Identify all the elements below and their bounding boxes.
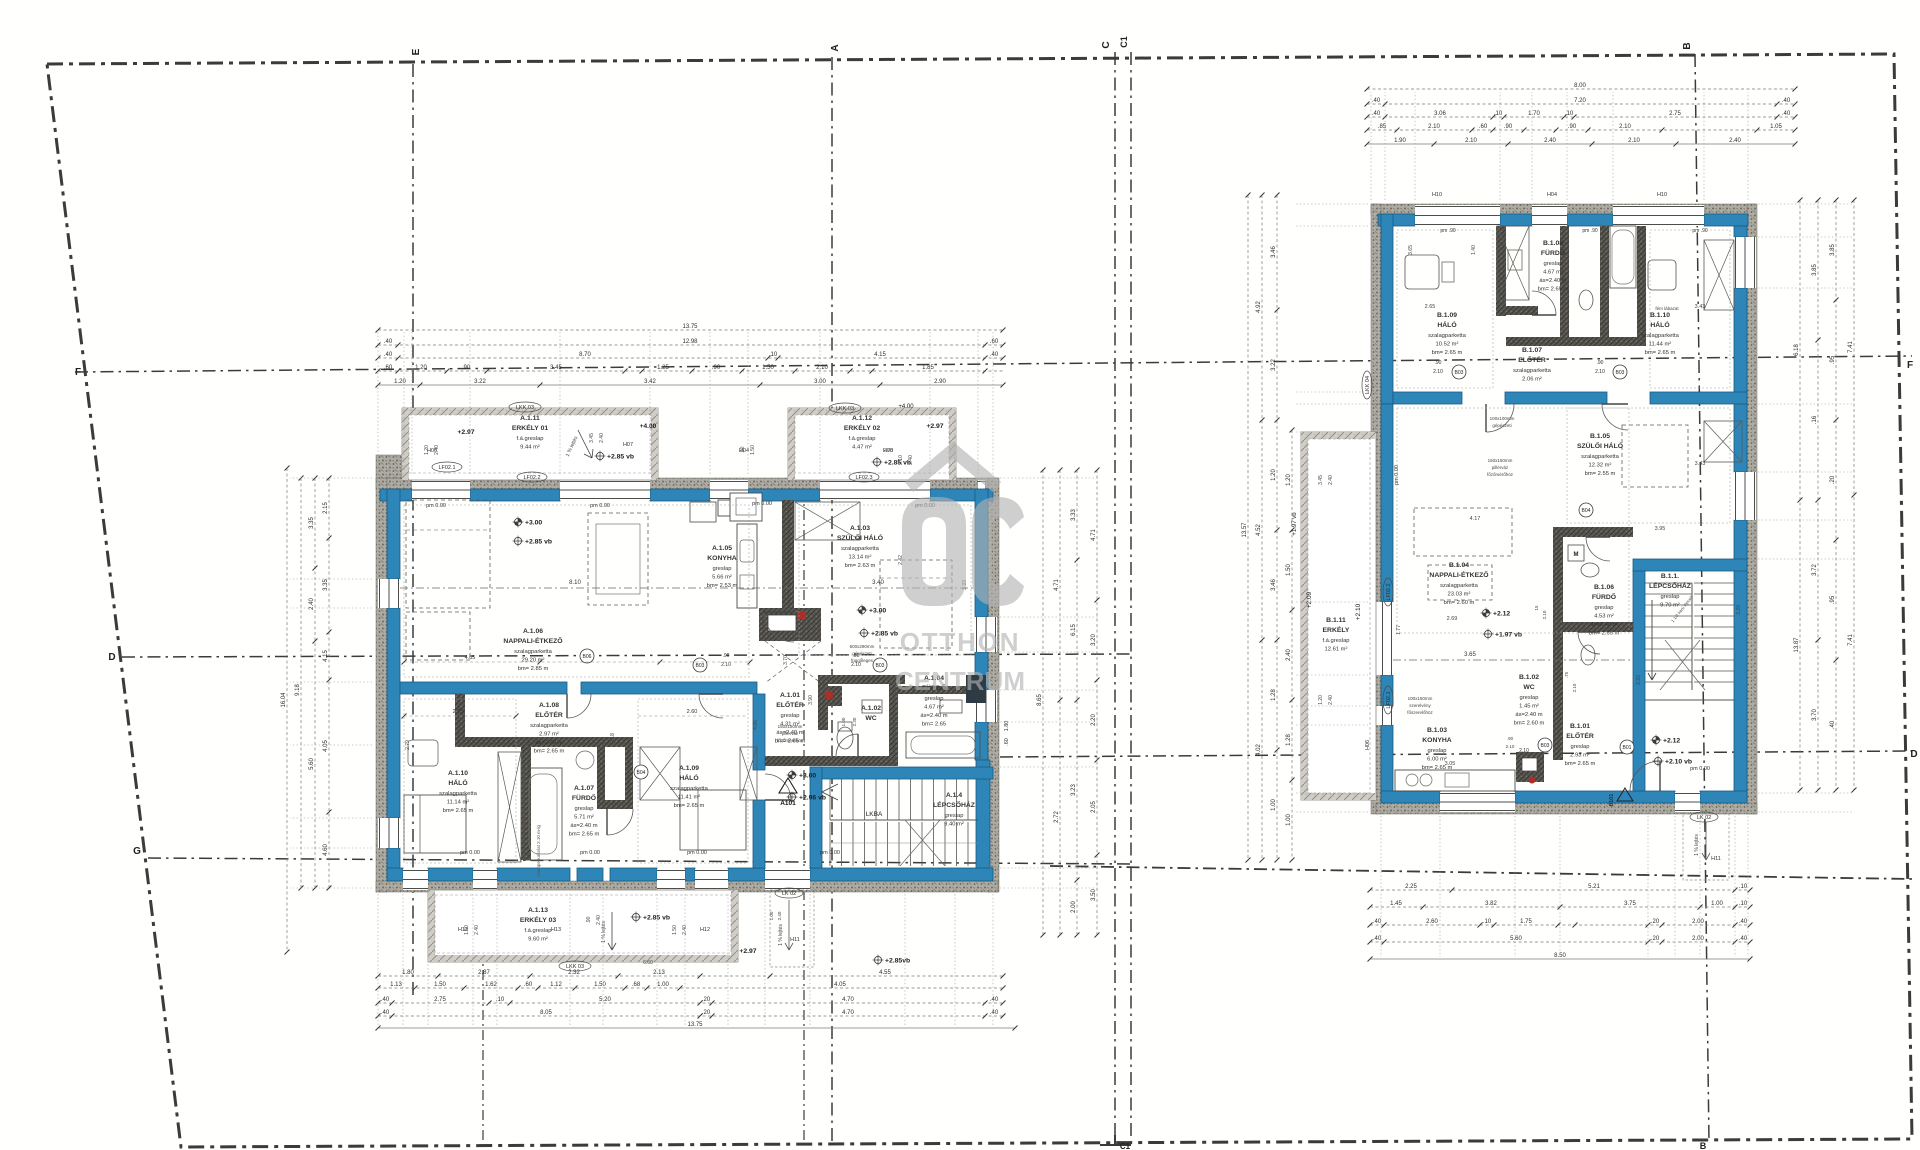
svg-text:2.10: 2.10 — [1433, 369, 1443, 375]
svg-text:2.40: 2.40 — [596, 915, 602, 925]
svg-text:2.90: 2.90 — [934, 379, 946, 385]
svg-text:11.14 m²: 11.14 m² — [447, 800, 470, 806]
svg-text:600x290mm: 600x290mm — [850, 644, 875, 649]
svg-text:2.10: 2.10 — [816, 365, 828, 371]
svg-text:A101: A101 — [780, 800, 796, 807]
svg-text:2.10: 2.10 — [1572, 683, 1577, 692]
svg-text:.20: .20 — [1651, 936, 1660, 942]
svg-text:KONYHA: KONYHA — [707, 555, 737, 562]
svg-text:1.85: 1.85 — [922, 365, 934, 371]
svg-text:4.47 m²: 4.47 m² — [852, 445, 872, 451]
svg-text:ELŐTÉR: ELŐTÉR — [776, 700, 804, 709]
svg-text:LKK 03: LKK 03 — [516, 405, 534, 411]
svg-text:1.12: 1.12 — [550, 982, 562, 988]
svg-text:9.70 m²: 9.70 m² — [1660, 603, 1680, 609]
svg-text:B03: B03 — [1616, 370, 1625, 376]
svg-text:.95: .95 — [1830, 595, 1836, 604]
svg-text:B.1.08: B.1.08 — [1543, 240, 1563, 247]
svg-text:2.10: 2.10 — [1542, 610, 1547, 619]
svg-text:1.00: 1.00 — [1711, 901, 1723, 907]
svg-text:8.00: 8.00 — [1574, 83, 1586, 89]
svg-text:greslap: greslap — [712, 566, 731, 572]
svg-text:1.20: 1.20 — [415, 365, 427, 371]
svg-text:3.35: 3.35 — [309, 517, 315, 529]
svg-text:11.44 m²: 11.44 m² — [1649, 342, 1672, 348]
svg-text:2.20: 2.20 — [1636, 675, 1642, 685]
svg-text:3.42: 3.42 — [644, 379, 656, 385]
svg-text:+3.00: +3.00 — [799, 773, 816, 780]
svg-text:A.1.11: A.1.11 — [520, 415, 540, 422]
svg-text:4.17: 4.17 — [1470, 516, 1481, 522]
svg-text:7.20: 7.20 — [1574, 98, 1586, 104]
svg-text:ELŐTÉR: ELŐTÉR — [535, 710, 563, 719]
svg-text:ERKÉLY: ERKÉLY — [1323, 625, 1350, 634]
svg-text:LKK 03: LKK 03 — [566, 964, 584, 970]
svg-text:greslap: greslap — [944, 813, 963, 819]
svg-text:1.50: 1.50 — [594, 982, 606, 988]
svg-text:ELŐTÉR: ELŐTÉR — [1566, 731, 1594, 740]
svg-text:2.72: 2.72 — [1054, 811, 1060, 823]
svg-text:B101: B101 — [1609, 794, 1615, 807]
svg-text:.40: .40 — [990, 997, 999, 1003]
svg-text:.10: .10 — [769, 352, 778, 358]
svg-text:.20: .20 — [1830, 475, 1836, 484]
svg-text:3.43: 3.43 — [1695, 304, 1706, 310]
svg-text:4.70: 4.70 — [842, 997, 854, 1003]
svg-text:pm .90: pm .90 — [1440, 228, 1456, 234]
svg-text:3.65: 3.65 — [1408, 245, 1414, 255]
svg-text:ás=2.40 m: ás=2.40 m — [1590, 622, 1617, 628]
svg-text:8.65: 8.65 — [1037, 694, 1043, 706]
svg-text:150x150mm: 150x150mm — [778, 724, 803, 729]
svg-text:ás=2.40 m: ás=2.40 m — [1515, 712, 1542, 718]
svg-text:2.10: 2.10 — [721, 662, 731, 668]
svg-text:B.1.11: B.1.11 — [1326, 617, 1346, 624]
svg-text:4.15: 4.15 — [323, 650, 329, 662]
svg-text:HÁLÓ: HÁLÓ — [448, 778, 467, 787]
svg-text:főszerelőhöz: főszerelőhöz — [1407, 710, 1433, 715]
svg-text:2.70: 2.70 — [883, 448, 893, 454]
svg-text:+2.97: +2.97 — [739, 948, 756, 955]
svg-text:2.10: 2.10 — [1506, 744, 1515, 749]
svg-text:2.25: 2.25 — [1405, 884, 1417, 890]
svg-text:B.1.04: B.1.04 — [1449, 562, 1469, 569]
svg-text:D: D — [108, 652, 115, 663]
svg-text:1.70: 1.70 — [1528, 111, 1540, 117]
svg-text:.90: .90 — [740, 446, 746, 453]
svg-text:szalagparketta: szalagparketta — [530, 723, 568, 729]
svg-text:B03: B03 — [696, 663, 705, 669]
svg-text:.40: .40 — [384, 339, 393, 345]
svg-text:2.40: 2.40 — [1286, 649, 1292, 661]
svg-text:greslap: greslap — [780, 713, 799, 719]
svg-text:.40: .40 — [381, 997, 390, 1003]
svg-text:1.50: 1.50 — [1286, 564, 1292, 576]
svg-text:fém lábazat: fém lábazat — [1655, 306, 1679, 311]
svg-text:.40: .40 — [1739, 919, 1748, 925]
svg-text:11.41 m²: 11.41 m² — [678, 795, 701, 801]
svg-text:2.40: 2.40 — [1328, 695, 1334, 705]
svg-text:4.85: 4.85 — [465, 655, 476, 661]
svg-text:3.22: 3.22 — [1271, 359, 1277, 371]
svg-text:2.87: 2.87 — [478, 970, 490, 976]
svg-text:6.15: 6.15 — [1071, 624, 1077, 636]
svg-text:2.10: 2.10 — [1628, 138, 1640, 144]
svg-text:4.52: 4.52 — [1256, 524, 1262, 536]
svg-text:100x100mm: 100x100mm — [1490, 416, 1515, 421]
svg-text:2.40: 2.40 — [599, 433, 605, 443]
svg-text:.90: .90 — [723, 653, 730, 659]
svg-text:H13: H13 — [551, 927, 561, 933]
svg-text:7.41: 7.41 — [1848, 341, 1854, 353]
svg-text:3.35: 3.35 — [323, 579, 329, 591]
svg-text:B04: B04 — [1582, 508, 1591, 514]
svg-text:5.20: 5.20 — [599, 997, 611, 1003]
svg-text:FÜRDŐ: FÜRDŐ — [572, 793, 596, 802]
svg-text:4.15: 4.15 — [874, 352, 886, 358]
svg-text:75: 75 — [526, 740, 532, 746]
svg-text:3.33: 3.33 — [1071, 509, 1077, 521]
svg-text:10.52 m²: 10.52 m² — [1436, 342, 1459, 348]
svg-text:H06: H06 — [1365, 740, 1371, 750]
svg-text:szalagparketta: szalagparketta — [1641, 333, 1679, 339]
svg-text:.90: .90 — [1507, 736, 1514, 741]
svg-text:bm= 2.65 m: bm= 2.65 m — [1538, 287, 1569, 293]
svg-text:főzőmérőhöz: főzőmérőhöz — [777, 738, 804, 743]
svg-text:.60: .60 — [1004, 738, 1010, 746]
svg-text:bm= 2.53 m: bm= 2.53 m — [707, 583, 738, 589]
svg-text:B.1.01: B.1.01 — [1570, 723, 1590, 730]
svg-text:pm 0.00: pm 0.00 — [590, 503, 610, 509]
svg-text:.68: .68 — [632, 982, 641, 988]
svg-text:2.40: 2.40 — [908, 455, 914, 465]
svg-text:.10: .10 — [1494, 111, 1503, 117]
svg-text:pm 0.00: pm 0.00 — [460, 850, 480, 856]
svg-text:9.44 m²: 9.44 m² — [520, 445, 540, 451]
svg-text:3.70: 3.70 — [783, 655, 789, 665]
svg-text:bm= 2.65: bm= 2.65 — [922, 722, 946, 728]
svg-text:+2.85 vb: +2.85 vb — [871, 631, 898, 638]
svg-text:8.05: 8.05 — [540, 1010, 552, 1016]
svg-text:LF02.2: LF02.2 — [523, 475, 540, 481]
svg-text:3.00: 3.00 — [814, 379, 826, 385]
svg-text:.20: .20 — [702, 997, 711, 1003]
svg-text:HÁLÓ: HÁLÓ — [1650, 320, 1669, 329]
svg-text:H04: H04 — [1547, 192, 1557, 198]
svg-text:1.20: 1.20 — [1286, 474, 1292, 486]
svg-text:pm 0.00: pm 0.00 — [752, 501, 772, 507]
svg-text:2.75: 2.75 — [453, 709, 464, 715]
svg-text:szalagparketta: szalagparketta — [1440, 583, 1478, 589]
svg-text:KONYHA: KONYHA — [1422, 737, 1452, 744]
svg-text:12.98: 12.98 — [682, 339, 698, 345]
svg-text:greslap: greslap — [1543, 261, 1562, 267]
svg-text:.10: .10 — [1739, 901, 1748, 907]
svg-text:1.50: 1.50 — [750, 445, 756, 455]
svg-text:pillérváz: pillérváz — [782, 731, 799, 736]
svg-text:2.40: 2.40 — [1544, 138, 1556, 144]
svg-text:3.06: 3.06 — [1434, 111, 1446, 117]
svg-text:bm= 2.55 m: bm= 2.55 m — [1585, 471, 1616, 477]
svg-text:1.00: 1.00 — [769, 911, 774, 920]
svg-text:ás=2.40 m: ás=2.40 m — [920, 713, 947, 719]
svg-text:4.02: 4.02 — [1256, 744, 1262, 756]
svg-text:3.43: 3.43 — [1695, 461, 1706, 467]
svg-text:3.70: 3.70 — [1812, 709, 1818, 721]
svg-text:szalagparketta: szalagparketta — [439, 791, 477, 797]
svg-text:greslap: greslap — [1594, 605, 1613, 611]
svg-text:+3.00: +3.00 — [869, 608, 886, 615]
svg-text:A.1.02: A.1.02 — [861, 705, 881, 712]
svg-text:.60: .60 — [1479, 124, 1488, 130]
svg-text:.40: .40 — [384, 352, 393, 358]
svg-text:H10: H10 — [1657, 192, 1667, 198]
svg-text:B.1.1.: B.1.1. — [1661, 573, 1679, 580]
svg-text:5.60: 5.60 — [309, 758, 315, 770]
svg-text:5.66 m²: 5.66 m² — [712, 575, 732, 581]
svg-text:1.25: 1.25 — [657, 365, 669, 371]
svg-text:12.32 m²: 12.32 m² — [1589, 463, 1612, 469]
svg-text:LÉPCSŐHÁZ: LÉPCSŐHÁZ — [1649, 581, 1691, 590]
svg-text:C1: C1 — [1119, 36, 1129, 48]
svg-text:4.71: 4.71 — [1054, 579, 1060, 591]
svg-text:pm 0.00: pm 0.00 — [580, 850, 600, 856]
svg-text:8.70: 8.70 — [579, 352, 591, 358]
svg-text:1.62: 1.62 — [485, 982, 497, 988]
svg-text:2.10: 2.10 — [1519, 748, 1529, 754]
svg-text:+4.00: +4.00 — [898, 404, 914, 410]
svg-text:8.50: 8.50 — [1554, 953, 1566, 959]
svg-text:2.00: 2.00 — [1071, 901, 1077, 913]
svg-text:2.10: 2.10 — [1428, 124, 1440, 130]
svg-text:1 % lejtés: 1 % lejtés — [1694, 834, 1700, 856]
svg-text:.20: .20 — [702, 1010, 711, 1016]
svg-text:A.1.05: A.1.05 — [712, 545, 732, 552]
svg-text:16.04: 16.04 — [281, 692, 287, 708]
svg-text:6.60: 6.60 — [643, 960, 653, 966]
svg-text:2.10: 2.10 — [898, 455, 904, 465]
svg-text:100x150mm: 100x150mm — [1408, 696, 1433, 701]
svg-text:f.á.greslap: f.á.greslap — [1322, 638, 1349, 644]
svg-text:greslap: greslap — [1570, 744, 1589, 750]
svg-text:2.06 m²: 2.06 m² — [1522, 377, 1542, 383]
svg-text:bm= 2.65 m: bm= 2.65 m — [1645, 350, 1676, 356]
svg-text:.90: .90 — [1597, 360, 1604, 366]
svg-text:f.á.greslap: f.á.greslap — [848, 436, 875, 442]
svg-text:bm= 2.65 m: bm= 2.65 m — [1589, 631, 1620, 637]
svg-text:.16: .16 — [1812, 415, 1818, 424]
svg-text:pm 0.00: pm 0.00 — [426, 503, 446, 509]
svg-text:LÉPCSŐHÁZ: LÉPCSŐHÁZ — [933, 800, 975, 809]
svg-text:ERKÉLY 03: ERKÉLY 03 — [520, 915, 556, 924]
svg-text:.60: .60 — [524, 982, 533, 988]
svg-text:1.50: 1.50 — [434, 982, 446, 988]
svg-text:13.87: 13.87 — [1794, 637, 1800, 653]
svg-text:+2.85 vb: +2.85 vb — [607, 454, 634, 461]
svg-text:A.1.06: A.1.06 — [523, 628, 543, 635]
svg-text:4.05: 4.05 — [323, 740, 329, 752]
svg-text:NAPPALI-ÉTKEZŐ: NAPPALI-ÉTKEZŐ — [503, 636, 562, 645]
svg-text:1.50: 1.50 — [672, 925, 678, 935]
svg-text:4.92: 4.92 — [1256, 301, 1262, 313]
svg-text:4.67 m²: 4.67 m² — [1543, 270, 1563, 276]
svg-text:3.45: 3.45 — [1318, 475, 1324, 485]
svg-text:pm 0.00: pm 0.00 — [820, 850, 840, 856]
svg-text:6.18: 6.18 — [1794, 344, 1800, 356]
svg-text:szerelvény: szerelvény — [1409, 703, 1431, 708]
svg-text:3.05: 3.05 — [1445, 761, 1456, 767]
svg-text:.90: .90 — [712, 365, 721, 371]
svg-text:B03: B03 — [1455, 370, 1464, 376]
svg-text:.40: .40 — [1372, 111, 1381, 117]
svg-text:2.79: 2.79 — [405, 740, 411, 750]
svg-text:.40: .40 — [1782, 111, 1791, 117]
svg-text:B: B — [1700, 1141, 1707, 1150]
svg-text:1 % lejtés: 1 % lejtés — [778, 924, 784, 946]
svg-text:+2.96 vb: +2.96 vb — [799, 795, 826, 802]
svg-text:A.1.4: A.1.4 — [946, 792, 962, 799]
svg-text:H11: H11 — [1711, 856, 1721, 862]
svg-text:1.90: 1.90 — [1394, 138, 1406, 144]
svg-text:13.75: 13.75 — [682, 324, 698, 330]
svg-text:3.95: 3.95 — [1655, 526, 1666, 532]
svg-text:1.00: 1.00 — [657, 982, 669, 988]
svg-text:9.18: 9.18 — [295, 684, 301, 696]
svg-text:greslap: greslap — [574, 806, 593, 812]
svg-text:A: A — [830, 44, 841, 51]
svg-text:B.1.03: B.1.03 — [1427, 727, 1447, 734]
svg-text:A.1.09: A.1.09 — [679, 765, 699, 772]
svg-text:.10: .10 — [1739, 884, 1748, 890]
svg-text:szalagparketta: szalagparketta — [1428, 333, 1466, 339]
svg-text:B.1.07: B.1.07 — [1522, 347, 1542, 354]
svg-text:A.1.10: A.1.10 — [448, 770, 468, 777]
svg-text:pm .90: pm .90 — [1582, 228, 1598, 234]
svg-text:M: M — [1574, 552, 1579, 558]
svg-text:4.60: 4.60 — [323, 844, 329, 856]
svg-text:.10: .10 — [1565, 111, 1574, 117]
svg-text:3.46: 3.46 — [1271, 246, 1277, 258]
svg-text:F: F — [75, 367, 81, 378]
svg-text:B03: B03 — [876, 663, 885, 669]
svg-text:LKBA: LKBA — [866, 811, 883, 818]
svg-text:+2.10: +2.10 — [1355, 603, 1362, 620]
svg-text:NAPPALI-ÉTKEZŐ: NAPPALI-ÉTKEZŐ — [1429, 570, 1488, 579]
svg-text:2.10: 2.10 — [1595, 369, 1605, 375]
svg-text:f.á.greslap: f.á.greslap — [516, 436, 543, 442]
svg-text:.90: .90 — [1435, 360, 1442, 366]
svg-text:3.23: 3.23 — [1071, 784, 1077, 796]
svg-text:E: E — [411, 48, 422, 55]
svg-text:2.60: 2.60 — [687, 709, 698, 715]
svg-text:+3.00: +3.00 — [525, 520, 542, 527]
svg-text:SZÜLŐI HÁLÓ: SZÜLŐI HÁLÓ — [837, 533, 883, 542]
svg-text:OTTHON: OTTHON — [900, 627, 1021, 657]
svg-text:.40: .40 — [1372, 98, 1381, 104]
svg-text:9.60 m²: 9.60 m² — [528, 937, 548, 943]
svg-text:WC: WC — [1523, 684, 1534, 691]
svg-text:A.1.13: A.1.13 — [528, 907, 548, 914]
svg-text:3.72: 3.72 — [1812, 564, 1818, 576]
svg-text:bm= 2.65 m: bm= 2.65 m — [534, 749, 565, 755]
svg-text:1.75: 1.75 — [1520, 919, 1532, 925]
svg-text:B03: B03 — [1541, 743, 1550, 749]
svg-text:WC: WC — [865, 715, 876, 722]
svg-text:főzőmérőhöz: főzőmérőhöz — [1487, 472, 1514, 477]
svg-text:1.28: 1.28 — [1271, 689, 1277, 701]
svg-text:1.40: 1.40 — [1471, 245, 1477, 255]
svg-text:bm= 2.85 m: bm= 2.85 m — [518, 666, 549, 672]
svg-text:2.65: 2.65 — [1425, 304, 1436, 310]
svg-text:2.40: 2.40 — [474, 925, 480, 935]
svg-text:G: G — [133, 846, 141, 857]
svg-text:2.10: 2.10 — [1619, 124, 1631, 130]
svg-text:CENTRUM: CENTRUM — [895, 666, 1025, 696]
svg-text:.90: .90 — [1504, 124, 1513, 130]
svg-text:LKK 03: LKK 03 — [836, 406, 854, 412]
svg-text:3.22: 3.22 — [474, 379, 486, 385]
svg-text:.60: .60 — [384, 365, 393, 371]
svg-text:pm .90: pm .90 — [1692, 228, 1708, 234]
svg-text:+1.97 vb: +1.97 vb — [1495, 632, 1522, 639]
svg-text:1.00: 1.00 — [1286, 814, 1292, 826]
svg-text:13.75: 13.75 — [687, 1022, 703, 1028]
svg-text:2.40: 2.40 — [1328, 475, 1334, 485]
svg-text:13.57: 13.57 — [1242, 522, 1248, 538]
svg-text:.40: .40 — [990, 1010, 999, 1016]
svg-text:.85: .85 — [1378, 124, 1387, 130]
svg-text:+1.97 vb: +1.97 vb — [1292, 512, 1298, 536]
svg-text:.10: .10 — [1483, 919, 1492, 925]
svg-text:bm= 2.65 m: bm= 2.65 m — [1432, 350, 1463, 356]
svg-text:ás=2.40 m: ás=2.40 m — [570, 823, 597, 829]
svg-text:A.1.03: A.1.03 — [850, 525, 870, 532]
svg-text:.75: .75 — [1564, 671, 1569, 678]
svg-text:ERKÉLY 02: ERKÉLY 02 — [844, 423, 880, 432]
svg-text:3.45: 3.45 — [589, 433, 595, 443]
svg-text:LKK 04: LKK 04 — [1365, 376, 1371, 394]
svg-text:greslap: greslap — [1660, 594, 1679, 600]
svg-text:2.30: 2.30 — [852, 717, 857, 726]
svg-text:2.93 m²: 2.93 m² — [1570, 753, 1590, 759]
svg-text:greslap: greslap — [1427, 748, 1446, 754]
svg-text:.90: .90 — [1568, 124, 1577, 130]
svg-text:3.82: 3.82 — [1485, 901, 1497, 907]
svg-text:B.1.09: B.1.09 — [1437, 312, 1457, 319]
svg-text:1.00: 1.00 — [1271, 799, 1277, 811]
svg-text:3.85: 3.85 — [1830, 244, 1836, 256]
svg-text:1.20: 1.20 — [1271, 469, 1277, 481]
svg-text:3.90: 3.90 — [808, 695, 814, 705]
svg-text:1.28: 1.28 — [1286, 734, 1292, 746]
svg-text:H11: H11 — [790, 937, 800, 943]
svg-text:ás=2.40 m: ás=2.40 m — [1539, 278, 1566, 284]
svg-text:HÁLÓ: HÁLÓ — [679, 773, 698, 782]
svg-text:3.75: 3.75 — [1624, 901, 1636, 907]
svg-text:greslap: greslap — [1519, 695, 1538, 701]
svg-text:3.40: 3.40 — [872, 580, 884, 586]
svg-text:pillérváz: pillérváz — [1492, 465, 1509, 470]
svg-text:5.21: 5.21 — [1588, 884, 1600, 890]
svg-text:greslap: greslap — [924, 696, 943, 702]
svg-text:2.00: 2.00 — [1692, 919, 1704, 925]
svg-text:H12: H12 — [700, 927, 710, 933]
svg-text:2.40: 2.40 — [682, 925, 688, 935]
svg-text:1.80: 1.80 — [402, 970, 414, 976]
svg-text:4.70: 4.70 — [842, 1010, 854, 1016]
svg-text:LF02.1: LF02.1 — [1386, 691, 1392, 708]
svg-text:B.1.06: B.1.06 — [1594, 584, 1614, 591]
